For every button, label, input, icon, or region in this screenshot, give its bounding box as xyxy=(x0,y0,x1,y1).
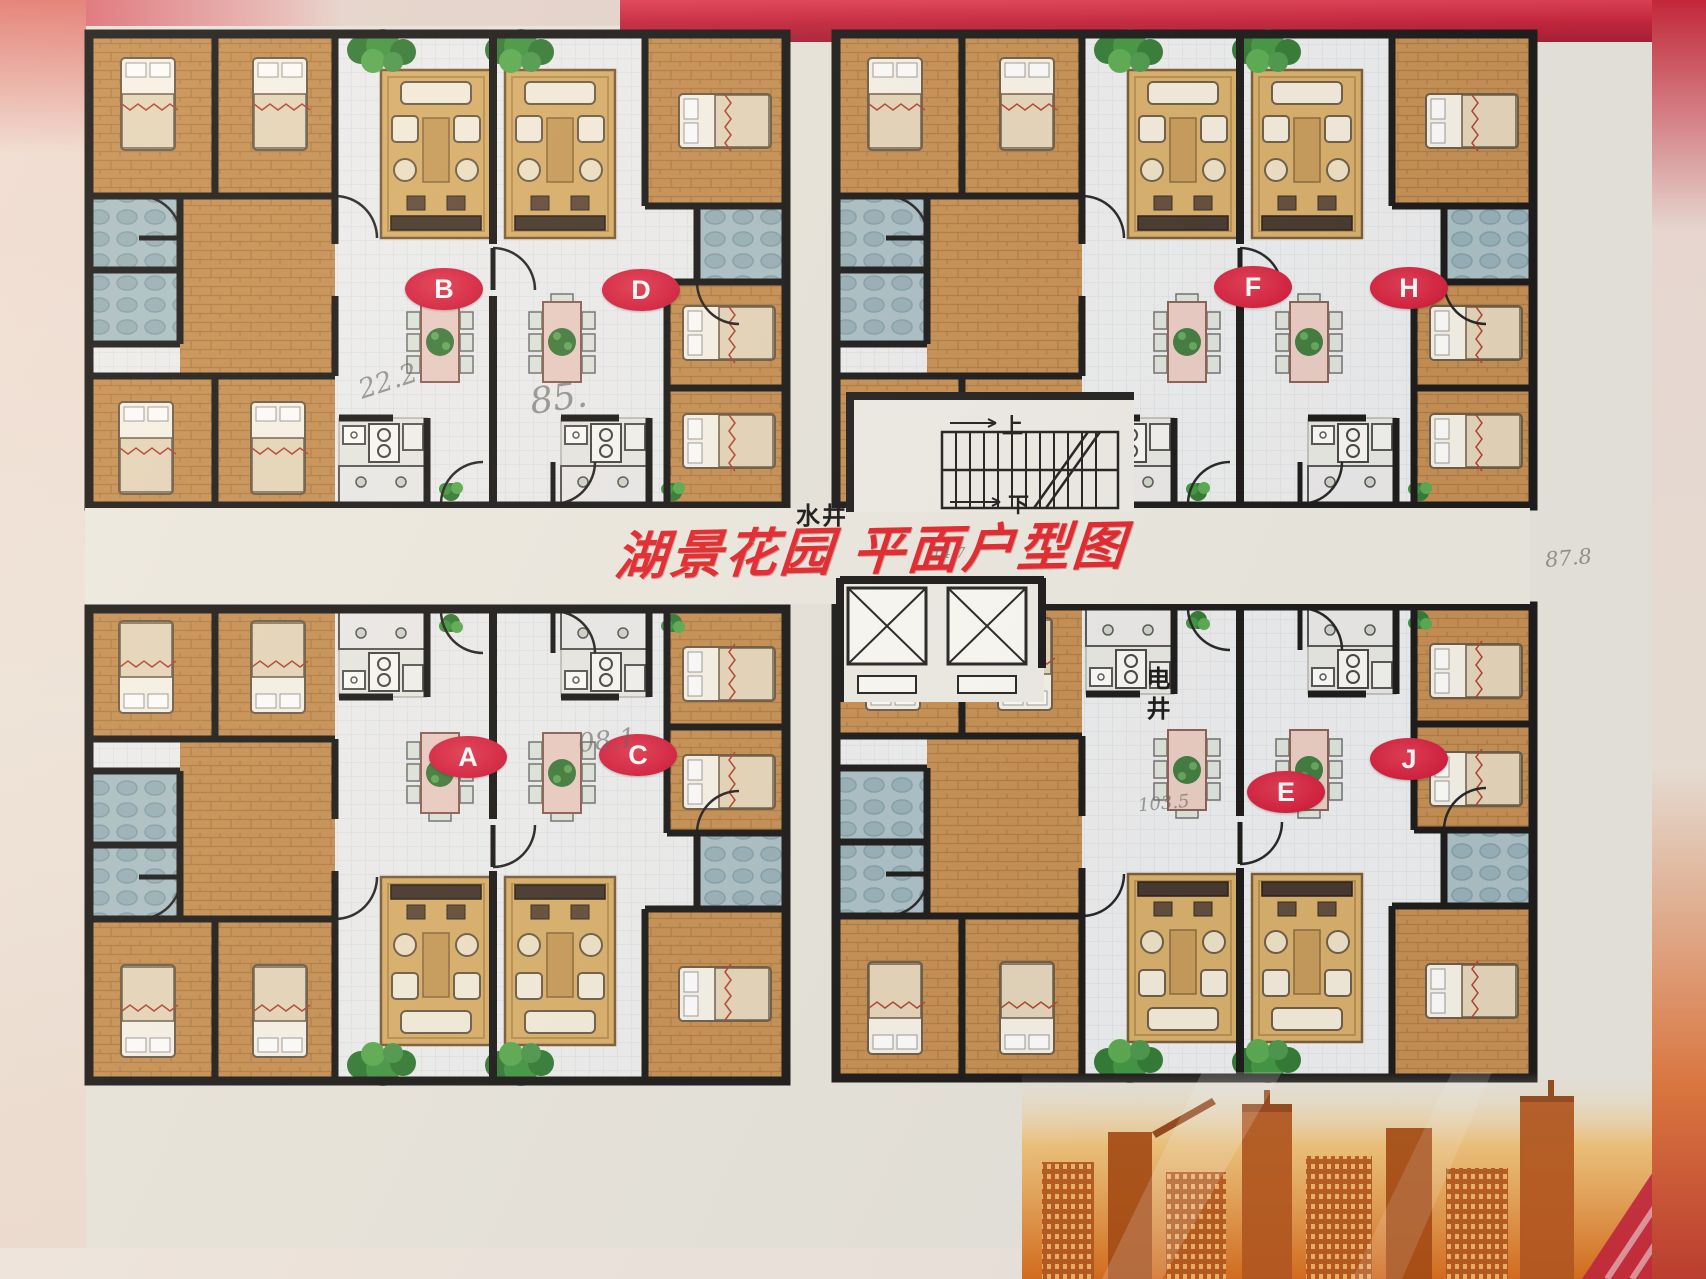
unit-badge-e: E xyxy=(1247,771,1325,813)
stairs-up-label: 上 xyxy=(1002,410,1023,440)
unit-badge-f: F xyxy=(1214,266,1292,308)
unit-badge-j: J xyxy=(1370,738,1448,780)
pencil-note: 103.5 xyxy=(1137,791,1190,816)
unit-badge-h: H xyxy=(1370,267,1448,309)
block-bottom-left xyxy=(89,609,786,1086)
unit-badge-b: B xyxy=(405,268,483,310)
electric-shaft-label: 电井 xyxy=(1138,666,1173,752)
pencil-note: 87.8 xyxy=(1544,544,1593,572)
city-skyline-graphic xyxy=(1022,1072,1706,1279)
unit-badge-d: D xyxy=(602,269,680,311)
elevator-shafts xyxy=(836,578,1044,702)
unit-badge-a: A xyxy=(429,736,507,778)
water-shaft-label: 水井 xyxy=(796,496,848,531)
pencil-note: 08.1 xyxy=(577,723,638,759)
stairs-down-label: 下 xyxy=(1008,489,1029,519)
frame-right-strip xyxy=(1652,0,1706,1279)
pencil-note: 85. xyxy=(527,374,589,423)
stairwell xyxy=(846,392,1134,512)
poster-title: 湖景花园 平面户型图 xyxy=(613,502,1218,579)
pencil-note: 14.7 xyxy=(932,544,965,562)
